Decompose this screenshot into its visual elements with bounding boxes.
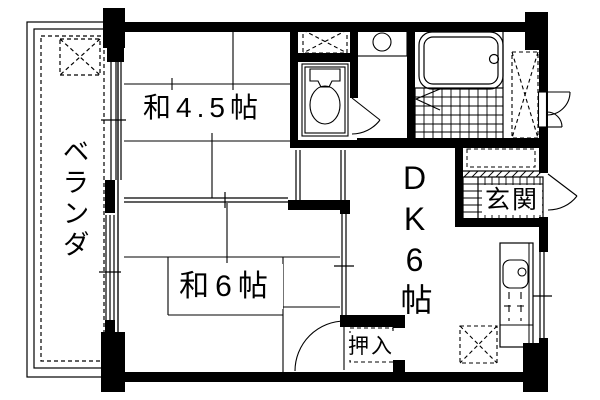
sliding-door-between-rooms xyxy=(124,192,288,208)
floorplan-canvas: ベランダ 和4.5帖 和6帖 DK6帖 玄関 押入 xyxy=(0,0,600,400)
shoe-cabinet-icon xyxy=(462,145,540,171)
room-door-icon xyxy=(295,321,345,371)
refrigerator-space-icon xyxy=(460,326,497,363)
bathroom-tile-floor xyxy=(415,32,503,140)
entrance-door-icon xyxy=(548,174,577,210)
room-label-japanese-room-6: 和6帖 xyxy=(170,264,283,309)
window-kitchen-east xyxy=(533,252,552,338)
meter-box-doors-icon xyxy=(539,92,571,127)
toilet-icon xyxy=(302,64,348,136)
storage-closet-icon xyxy=(512,52,538,138)
balcony-pad-icon xyxy=(60,39,100,75)
entrance-step-hatch xyxy=(464,171,542,177)
room-label-dining-kitchen: DK6帖 xyxy=(393,165,436,315)
room-label-veranda: ベランダ xyxy=(54,131,92,267)
room-label-entrance: 玄関 xyxy=(482,185,542,215)
sliding-door-dk-6 xyxy=(334,214,354,315)
bathtub-icon xyxy=(419,32,503,89)
room-label-closet: 押入 xyxy=(345,333,397,360)
sliding-door-dk-4-5 xyxy=(296,150,345,200)
room-label-japanese-room-4-5: 和4.5帖 xyxy=(126,91,280,124)
washbasin-icon xyxy=(357,30,407,56)
window-west-4-5 xyxy=(101,62,127,180)
washing-machine-pan-icon xyxy=(303,30,347,53)
folding-bath-door-icon xyxy=(416,89,440,110)
kitchen-counter-icon xyxy=(500,243,533,347)
toilet-door-icon xyxy=(352,98,380,134)
